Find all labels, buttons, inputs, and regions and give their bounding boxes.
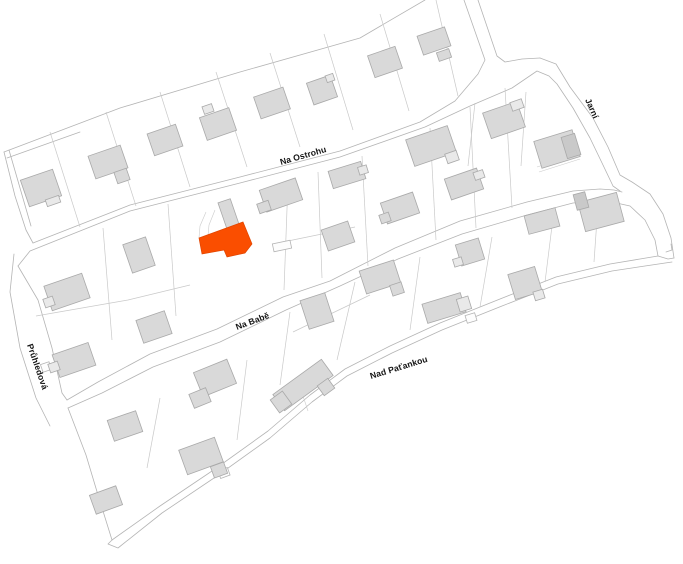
street-label: Na Ostrohu: [279, 144, 328, 167]
parcel-line: [237, 360, 247, 440]
building[interactable]: [147, 124, 183, 156]
building[interactable]: [136, 311, 172, 343]
building[interactable]: [254, 87, 291, 119]
building[interactable]: [321, 221, 355, 251]
highlighted-building[interactable]: [199, 222, 252, 257]
shed-outline: [272, 240, 291, 252]
street-block-outline: [666, 244, 672, 252]
parcel-line: [280, 312, 290, 385]
street-block-outline: [7, 132, 80, 158]
street-block-outline: [478, 0, 540, 62]
street-label: Nad Paťankou: [369, 354, 429, 381]
building[interactable]: [368, 46, 403, 77]
building[interactable]: [325, 73, 335, 82]
building[interactable]: [202, 104, 214, 115]
parcel-line: [337, 282, 355, 360]
street-block-outline: [108, 262, 672, 548]
building[interactable]: [300, 293, 334, 330]
street-block-outline: [68, 201, 658, 408]
parcel-line: [410, 257, 420, 330]
parcel-line: [470, 107, 476, 228]
parcel-line: [480, 237, 492, 307]
cadastral-map[interactable]: Na OstrohuJarníNa BaběPrůhledováNad Paťa…: [0, 0, 683, 564]
street-label: Na Babě: [234, 310, 270, 332]
detail-line: [199, 212, 206, 238]
parcel-line: [468, 103, 475, 166]
street-block-outline: [658, 256, 674, 259]
building[interactable]: [573, 192, 589, 211]
building[interactable]: [524, 208, 560, 235]
parcel-line: [103, 228, 112, 340]
street-block-outline: [10, 254, 50, 426]
building[interactable]: [107, 411, 143, 442]
parcel-line: [318, 172, 322, 278]
street-block-outline: [68, 408, 112, 540]
building[interactable]: [510, 99, 524, 111]
shed-outline: [465, 313, 477, 324]
map-canvas[interactable]: Na OstrohuJarníNa BaběPrůhledováNad Paťa…: [0, 0, 683, 564]
detail-line: [208, 210, 215, 236]
parcel-line: [168, 204, 176, 316]
building[interactable]: [123, 237, 155, 273]
parcel-line: [147, 398, 160, 468]
building[interactable]: [89, 486, 122, 514]
building[interactable]: [52, 342, 96, 377]
